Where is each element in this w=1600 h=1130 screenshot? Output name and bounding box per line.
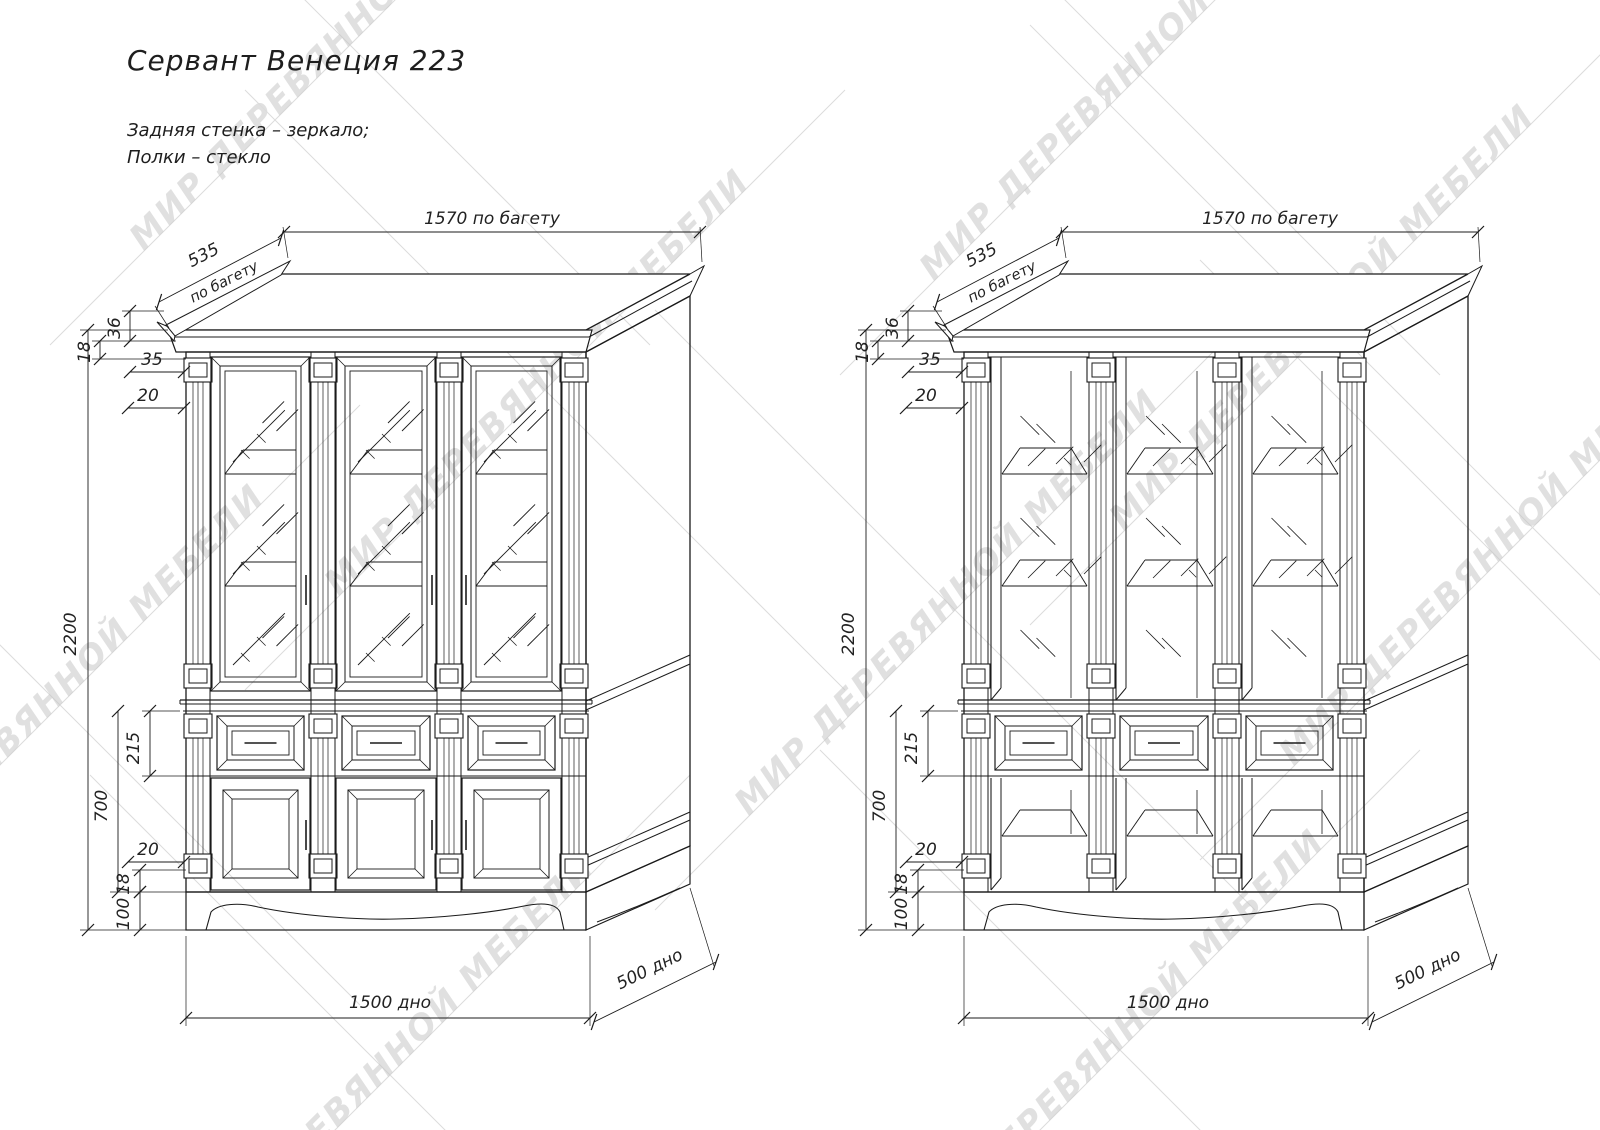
pilaster-capital	[435, 854, 463, 878]
side-moulding	[586, 655, 690, 701]
line	[468, 760, 478, 770]
note-back-wall: Задняя стенка – зеркало;	[127, 117, 466, 144]
drawer	[217, 716, 304, 770]
glass-hatch	[1028, 449, 1045, 466]
line	[1198, 760, 1208, 770]
glass-shelf-side	[1253, 448, 1271, 474]
shelf-side	[1197, 810, 1213, 836]
pilaster-capital	[962, 664, 990, 688]
pilaster-capital	[309, 714, 337, 738]
glass-hatch	[241, 450, 250, 459]
pilaster-capital	[560, 664, 588, 688]
glass-hatch	[1335, 445, 1352, 462]
cornice-front	[946, 330, 1370, 352]
cabinet-face	[186, 352, 586, 892]
open-bay	[1239, 357, 1352, 890]
side-moulding	[586, 664, 690, 710]
glass-hatch	[1288, 424, 1307, 443]
pilaster-capital	[435, 664, 463, 688]
glass-hatch	[1209, 557, 1226, 574]
side-panel	[586, 296, 690, 892]
glass-hatch	[1021, 416, 1040, 435]
pilaster-capital	[309, 358, 337, 382]
line	[223, 790, 232, 799]
dim-tick	[1364, 1014, 1380, 1030]
dim-cornice-36: 36	[105, 317, 125, 339]
extension-line	[1468, 888, 1492, 966]
glass-hatch	[366, 653, 375, 662]
dim-total-height-2200: 2200	[839, 612, 859, 655]
cabinet-front-axonometric-doors-closed	[157, 261, 704, 930]
watermark-text: МИР ДЕРЕВЯННОЙ МЕБЕЛИ	[911, 0, 1353, 288]
glass-hatch	[366, 450, 375, 459]
line	[1198, 716, 1208, 726]
side-moulding	[586, 812, 690, 858]
dim-tick	[151, 294, 167, 310]
line	[342, 760, 352, 770]
lower-door	[462, 778, 561, 890]
dim-top-inset-18: 18	[75, 341, 95, 363]
blueprint-page: Сервант Венеция 223 Задняя стенка – зерк…	[0, 0, 1600, 1130]
lower-door	[336, 778, 436, 890]
pilaster-capital	[1213, 714, 1241, 738]
line	[217, 716, 227, 726]
cabinet-front-axonometric-open-interior	[935, 261, 1482, 930]
glass-hatch	[388, 616, 410, 638]
watermark: МИР ДЕРЕВЯННОЙ МЕБЕЛИ	[820, 750, 1420, 1130]
pilaster-capital	[1213, 854, 1241, 878]
line	[995, 716, 1005, 726]
shelf-side-edge	[350, 450, 368, 474]
cornice-front	[168, 330, 592, 352]
dim-drawer-band-215: 215	[124, 732, 144, 764]
dim-tick	[1486, 954, 1502, 970]
glass-shelf-side	[1197, 560, 1213, 586]
pilaster-capital	[962, 714, 990, 738]
shelf-side-edge	[476, 562, 494, 586]
shelf-side	[1253, 810, 1271, 836]
glass-hatch	[1021, 630, 1040, 649]
cabinet-face	[964, 352, 1364, 892]
dim-lower-offset-20: 20	[915, 840, 937, 860]
glass-hatch	[514, 504, 536, 526]
door-panel-inner	[232, 799, 289, 869]
dim-total-height-2200: 2200	[61, 612, 81, 655]
pilaster-capital	[184, 358, 212, 382]
watermark: МИР ДЕРЕВЯННОЙ МЕБЕЛИ	[90, 775, 690, 1130]
glass-hatch	[388, 401, 410, 423]
side-moulding	[1364, 812, 1468, 858]
pilaster-capital	[1338, 358, 1366, 382]
glass-hatch	[1272, 416, 1291, 435]
dim-bottom-depth-500: 500 дно	[1391, 945, 1464, 994]
plinth-apron-curve	[984, 904, 1342, 930]
title-block: Сервант Венеция 223 Задняя стенка – зерк…	[127, 44, 466, 171]
shelf-side	[1002, 810, 1020, 836]
dim-top-width: 1570 по багету	[1202, 209, 1339, 229]
glass-hatch	[1335, 557, 1352, 574]
watermark: МИР ДЕРЕВЯННОЙ МЕБЕЛИ	[655, 310, 1255, 910]
door-panel	[223, 790, 298, 878]
extension-line	[690, 888, 714, 966]
note-shelves: Полки – стекло	[127, 144, 466, 171]
line	[217, 760, 227, 770]
door-panel	[474, 790, 549, 878]
dim-cornice-36: 36	[883, 317, 903, 339]
glass-hatch	[402, 409, 424, 431]
glass-shelf-side	[1253, 560, 1271, 586]
line	[474, 790, 483, 799]
glass-hatch	[1028, 561, 1045, 578]
glass-hatch	[1272, 518, 1291, 537]
dim-pilaster-20: 20	[137, 386, 159, 406]
line	[294, 760, 304, 770]
partition-wedge	[991, 688, 1001, 700]
glass-hatch	[1146, 630, 1165, 649]
pilaster-capital	[435, 714, 463, 738]
plinth-front	[964, 892, 1364, 930]
cornice-right-tip	[690, 266, 704, 296]
glass-hatch	[1153, 561, 1170, 578]
dim-plinth-100: 100	[892, 898, 912, 930]
glass-hatch	[263, 401, 285, 423]
dim-bottom-depth-500: 500 дно	[613, 945, 686, 994]
pilaster-capital	[560, 714, 588, 738]
glass-hatch	[1037, 424, 1056, 443]
glass-hatch	[382, 637, 391, 646]
glass-shelf-side	[1127, 560, 1145, 586]
pilaster-capital	[560, 854, 588, 878]
line	[415, 790, 424, 799]
notes: Задняя стенка – зеркало; Полки – стекло	[127, 117, 466, 171]
dim-side-offset-35: 35	[141, 350, 163, 370]
line	[294, 716, 304, 726]
glass-hatch	[257, 434, 266, 443]
dim-bottom-width-1500: 1500 дно	[349, 993, 431, 1013]
line	[1323, 760, 1333, 770]
line	[545, 760, 555, 770]
line	[474, 869, 483, 878]
glass-hatch	[1272, 630, 1291, 649]
dim-lower-inset-18: 18	[892, 873, 912, 895]
dim-bottom-width-1500: 1500 дно	[1127, 993, 1209, 1013]
pilaster-capital	[1087, 664, 1115, 688]
drawer	[1120, 716, 1208, 770]
line	[223, 869, 232, 878]
shelf-side-edge	[225, 450, 243, 474]
line	[1072, 760, 1082, 770]
pilaster-capital	[1338, 664, 1366, 688]
glass-hatch	[1279, 561, 1296, 578]
watermark-cross-line	[820, 750, 1420, 1130]
glass-shelf-side	[1002, 448, 1020, 474]
pilaster-capital	[309, 854, 337, 878]
page-title: Сервант Венеция 223	[127, 44, 466, 77]
dim-tick	[586, 1014, 602, 1030]
dim-top-depth-value: 535	[185, 239, 223, 272]
dim-plinth-100: 100	[114, 898, 134, 930]
dim-top-inset-18: 18	[853, 341, 873, 363]
glass-hatch	[382, 434, 391, 443]
cornice-right-tip	[1468, 266, 1482, 296]
shelf-side	[1071, 810, 1087, 836]
pilaster-capital	[560, 358, 588, 382]
line	[995, 760, 1005, 770]
glass-hatch	[492, 562, 501, 571]
line	[420, 760, 430, 770]
glass-hatch	[241, 562, 250, 571]
pilaster-capital	[309, 664, 337, 688]
pilaster-capital	[435, 358, 463, 382]
shelf-side-edge	[225, 562, 243, 586]
glass-hatch	[508, 546, 517, 555]
glass-hatch	[1288, 526, 1307, 545]
partition-wedge	[1242, 688, 1252, 700]
dim-top-width: 1570 по багету	[424, 209, 561, 229]
lower-door	[211, 778, 310, 890]
line	[468, 716, 478, 726]
glass-hatch	[241, 653, 250, 662]
pilaster-capital	[1338, 854, 1366, 878]
glass-hatch	[402, 624, 424, 646]
door-frame	[336, 778, 436, 890]
glass-hatch	[1162, 526, 1181, 545]
pilaster-capital	[184, 714, 212, 738]
dim-drawer-band-215: 215	[902, 732, 922, 764]
pilaster-capital	[1213, 358, 1241, 382]
dim-lower-offset-20: 20	[137, 840, 159, 860]
glass-hatch	[277, 409, 299, 431]
line	[540, 790, 549, 799]
line	[289, 790, 298, 799]
glass-hatch	[1315, 570, 1322, 577]
partition-wedge	[1116, 878, 1126, 890]
dim-lower-section-700: 700	[92, 790, 112, 822]
glass-hatch	[263, 616, 285, 638]
line	[1120, 760, 1130, 770]
pilaster-capital	[1338, 714, 1366, 738]
line	[420, 716, 430, 726]
door-panel	[348, 790, 424, 878]
pilaster-capital	[1087, 358, 1115, 382]
glass-hatch	[528, 512, 550, 534]
plinth-side-cut	[1375, 888, 1458, 922]
partition-wedge	[1116, 688, 1126, 700]
dim-tick	[929, 294, 945, 310]
pilaster-capital	[1213, 664, 1241, 688]
door-panel-inner	[357, 799, 415, 869]
dim-lower-section-700: 700	[870, 790, 890, 822]
line	[348, 790, 357, 799]
glass-hatch	[514, 616, 536, 638]
pilaster-capital	[1087, 854, 1115, 878]
glass-hatch	[257, 637, 266, 646]
glass-hatch	[1189, 570, 1196, 577]
plinth-side-cut	[597, 888, 680, 922]
watermark-cross-line	[820, 750, 1420, 1130]
line	[289, 869, 298, 878]
watermark-text: МИР ДЕРЕВЯННОЙ МЕБЕЛИ	[161, 846, 603, 1130]
door-panel-inner	[483, 799, 540, 869]
glass-hatch	[1162, 638, 1181, 657]
glass-hatch	[257, 546, 266, 555]
line	[1246, 760, 1256, 770]
side-moulding	[1364, 820, 1468, 866]
door-frame	[462, 778, 561, 890]
pilaster-capital	[1087, 714, 1115, 738]
line	[1072, 716, 1082, 726]
shelf-side	[1322, 810, 1338, 836]
dim-side-offset-35: 35	[919, 350, 941, 370]
pilaster-capital	[184, 664, 212, 688]
door-frame	[211, 778, 310, 890]
line	[1120, 716, 1130, 726]
glass-hatch	[1146, 518, 1165, 537]
dim-tick	[708, 954, 724, 970]
dim-lower-inset-18: 18	[114, 873, 134, 895]
glass-hatch	[1037, 638, 1056, 657]
glass-hatch	[277, 512, 299, 534]
glass-hatch	[277, 624, 299, 646]
glass-hatch	[1181, 559, 1198, 576]
glass-hatch	[528, 624, 550, 646]
watermark-text: МИР ДЕРЕВЯННОЙ МЕБЕЛИ	[1271, 331, 1600, 773]
glass-hatch	[1315, 458, 1322, 465]
line	[342, 716, 352, 726]
glass-hatch	[1279, 449, 1296, 466]
line	[1246, 716, 1256, 726]
shelf-side	[1127, 810, 1145, 836]
line	[348, 869, 357, 878]
glass-hatch	[508, 637, 517, 646]
dim-pilaster-20: 20	[915, 386, 937, 406]
line	[415, 869, 424, 878]
glass-hatch	[1064, 570, 1071, 577]
partition-wedge	[991, 878, 1001, 890]
drawer	[468, 716, 555, 770]
glass-hatch	[1084, 557, 1101, 574]
glass-hatch	[1288, 638, 1307, 657]
glass-hatch	[492, 653, 501, 662]
drawer	[342, 716, 430, 770]
line	[545, 716, 555, 726]
pilaster-capital	[962, 358, 990, 382]
